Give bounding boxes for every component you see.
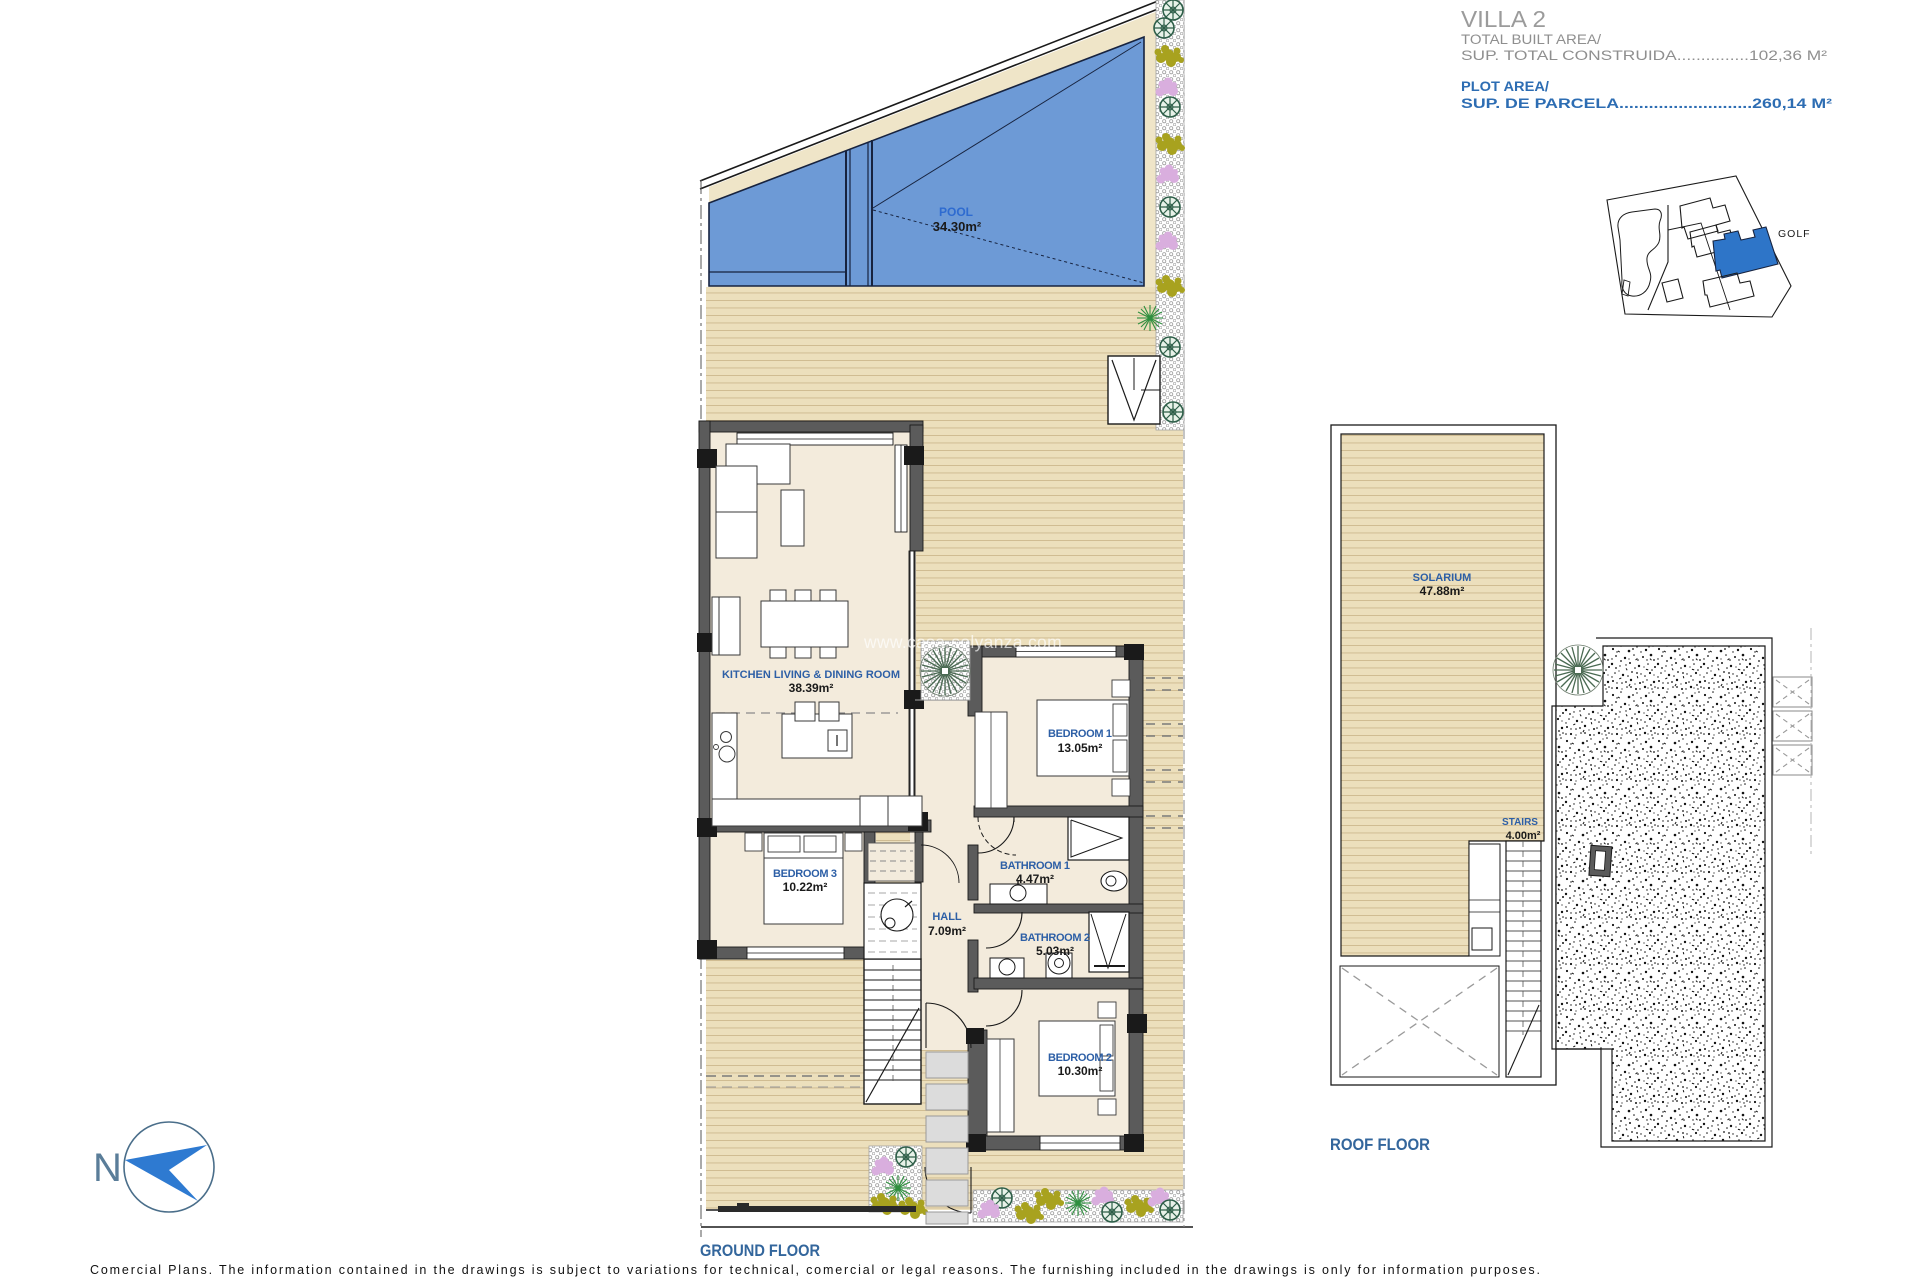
svg-text:Comercial Plans. The informati: Comercial Plans. The information contain… [90,1263,1540,1277]
svg-text:N: N [93,1146,122,1190]
svg-text:47.88m²: 47.88m² [1420,584,1465,598]
svg-text:5.03m²: 5.03m² [1036,944,1074,958]
svg-text:10.30m²: 10.30m² [1058,1064,1103,1078]
svg-text:10.22m²: 10.22m² [783,880,828,894]
svg-text:BATHROOM 2: BATHROOM 2 [1020,932,1090,944]
svg-text:SUP. DE PARCELA...............: SUP. DE PARCELA.........................… [1461,96,1833,111]
svg-text:POOL: POOL [939,205,973,219]
svg-text:4.00m²: 4.00m² [1506,830,1541,842]
svg-text:HALL: HALL [932,911,962,923]
svg-text:7.09m²: 7.09m² [928,924,966,938]
svg-text:KITCHEN LIVING & DINING ROOM: KITCHEN LIVING & DINING ROOM [722,669,900,681]
svg-text:13.05m²: 13.05m² [1058,741,1103,755]
svg-text:38.39m²: 38.39m² [789,681,834,695]
svg-text:BEDROOM 3: BEDROOM 3 [773,868,837,880]
svg-text:SOLARIUM: SOLARIUM [1413,572,1472,584]
svg-text:ROOF FLOOR: ROOF FLOOR [1330,1136,1430,1154]
svg-text:4.47m²: 4.47m² [1016,872,1054,886]
svg-text:PLOT AREA/: PLOT AREA/ [1461,79,1549,94]
svg-text:SUP. TOTAL CONSTRUIDA.........: SUP. TOTAL CONSTRUIDA...............102,… [1461,48,1828,63]
svg-text:GOLF: GOLF [1778,228,1811,240]
svg-text:BEDROOM 2: BEDROOM 2 [1048,1052,1112,1064]
svg-text:34.30m²: 34.30m² [933,219,982,234]
svg-text:VILLA 2: VILLA 2 [1461,6,1546,32]
svg-text:TOTAL BUILT AREA/: TOTAL BUILT AREA/ [1461,32,1601,47]
svg-text:GROUND FLOOR: GROUND FLOOR [700,1242,820,1260]
svg-text:www.casa-solyanza.com: www.casa-solyanza.com [863,632,1062,652]
svg-text:BATHROOM 1: BATHROOM 1 [1000,860,1070,872]
svg-text:STAIRS: STAIRS [1502,817,1538,828]
svg-text:BEDROOM 1: BEDROOM 1 [1048,728,1112,740]
